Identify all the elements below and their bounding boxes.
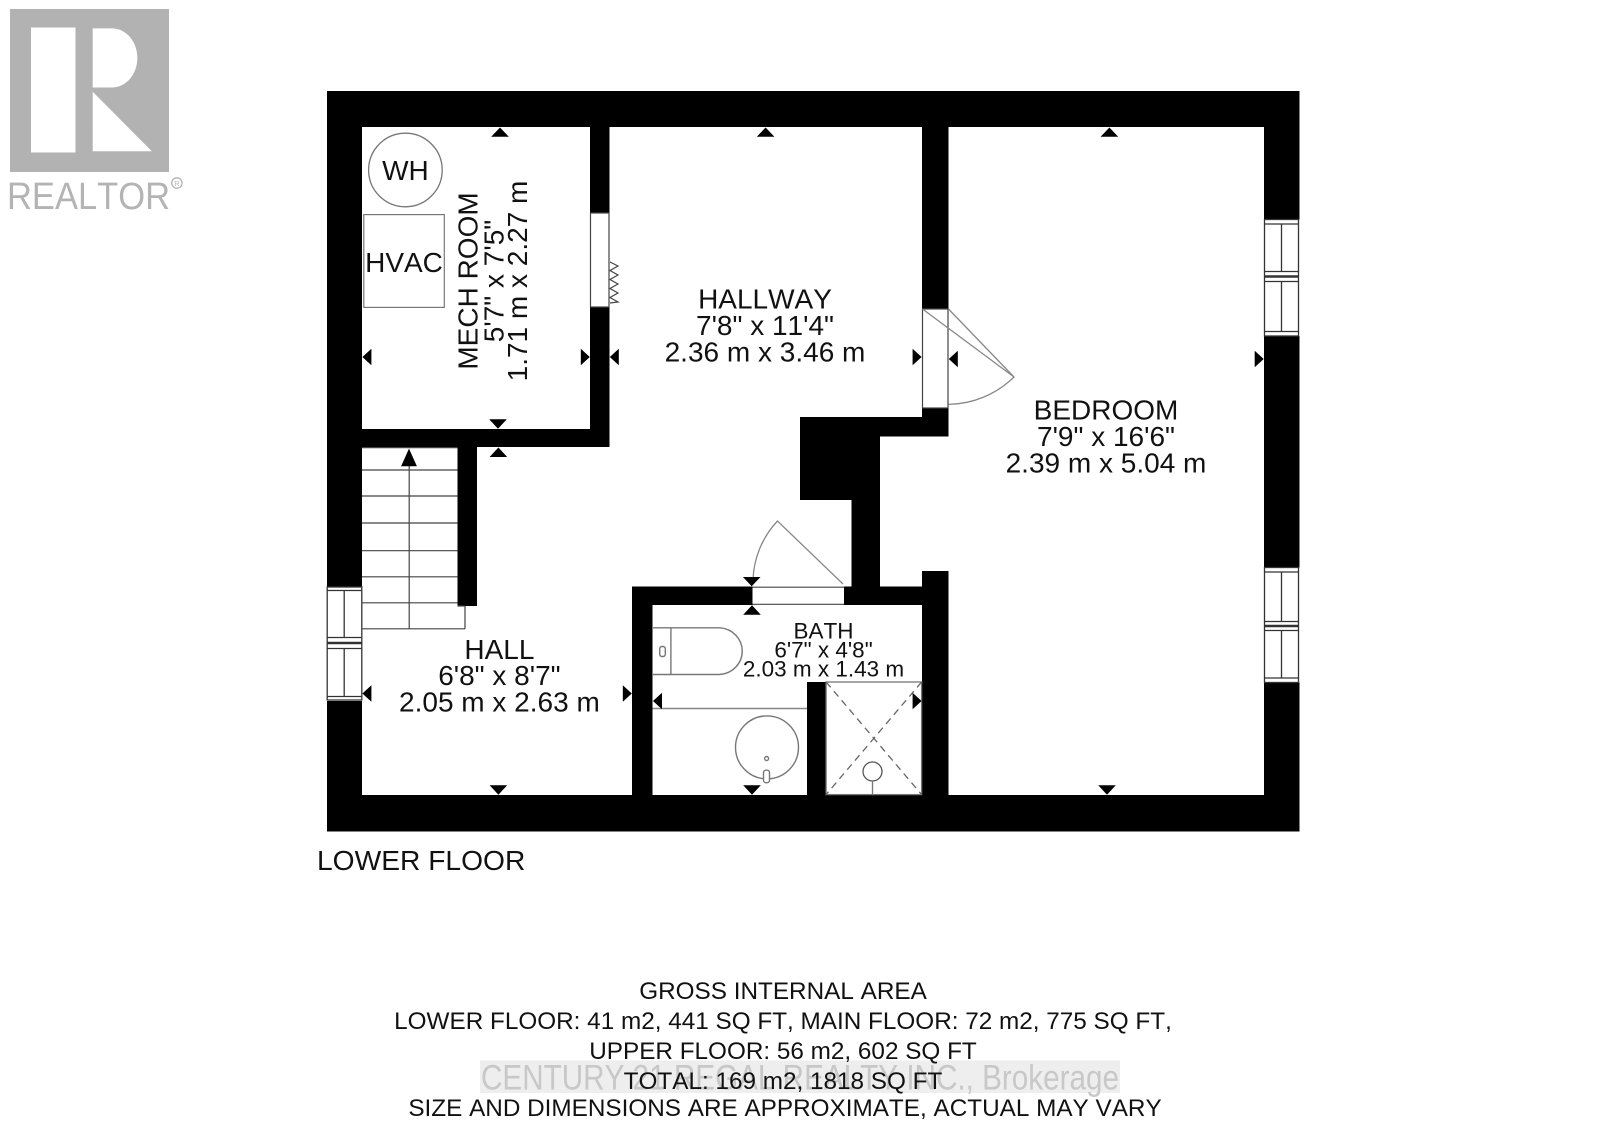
svg-text:2.36 m x 3.46 m: 2.36 m x 3.46 m [665,336,866,367]
svg-text:GROSS INTERNAL AREA: GROSS INTERNAL AREA [639,978,927,1005]
svg-text:TOTAL: 169 m2, 1818 SQ FT: TOTAL: 169 m2, 1818 SQ FT [624,1068,943,1095]
svg-text:2.39 m x 5.04 m: 2.39 m x 5.04 m [1006,448,1207,479]
svg-text:R: R [174,179,180,188]
svg-text:LOWER FLOOR: 41 m2, 441 SQ FT,: LOWER FLOOR: 41 m2, 441 SQ FT, MAIN FLOO… [394,1008,1172,1035]
svg-text:UPPER FLOOR: 56 m2, 602 SQ FT: UPPER FLOOR: 56 m2, 602 SQ FT [589,1038,977,1065]
svg-text:HVAC: HVAC [365,247,443,278]
svg-text:WH: WH [382,155,429,186]
svg-text:LOWER FLOOR: LOWER FLOOR [317,844,525,876]
svg-text:SIZE AND DIMENSIONS ARE APPROX: SIZE AND DIMENSIONS ARE APPROXIMATE, ACT… [408,1095,1161,1122]
svg-text:1.71 m x 2.27 m: 1.71 m x 2.27 m [502,181,533,382]
svg-text:2.05 m x 2.63 m: 2.05 m x 2.63 m [399,686,600,717]
svg-text:REALTOR: REALTOR [7,176,170,218]
svg-text:2.03 m x 1.43 m: 2.03 m x 1.43 m [743,656,904,681]
